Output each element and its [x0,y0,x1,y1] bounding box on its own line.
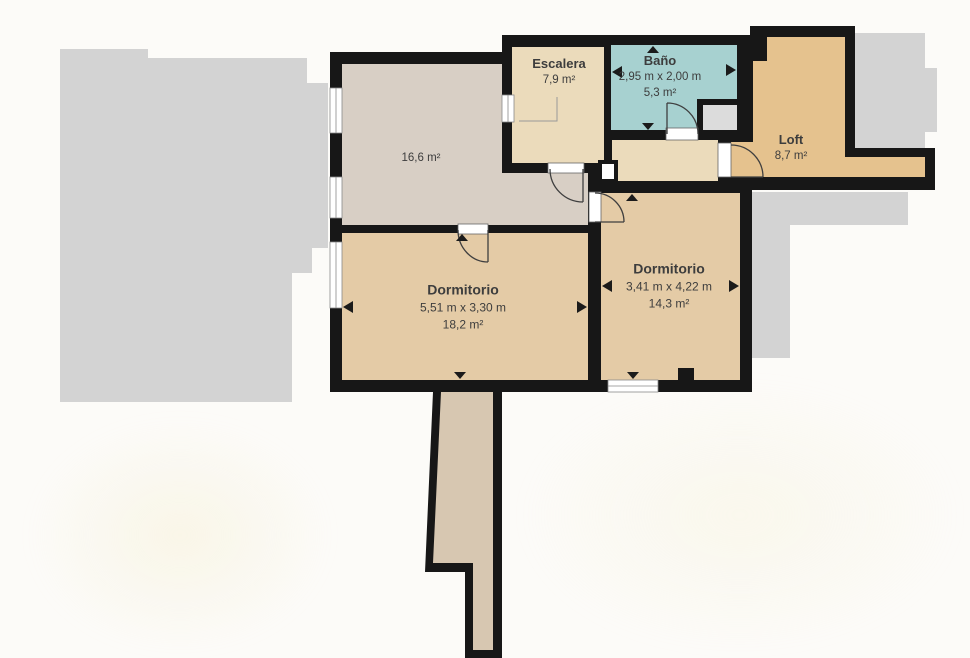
room-name: Dormitorio [420,281,506,300]
room-area: 8,7 m² [775,148,808,164]
shower-tray [703,105,737,130]
floorplan-image: 16,6 m² Escalera 7,9 m² Baño 2,95 m x 2,… [0,0,970,658]
door-sill-bathroom [666,128,698,140]
door-sill-bedroom1 [458,224,488,234]
room-area: 7,9 m² [532,72,586,88]
room-label-bathroom: Baño 2,95 m x 2,00 m 5,3 m² [619,53,701,101]
adjacent-building-right-top [855,33,937,148]
adjacent-building-right-bottom [750,192,908,358]
room-label-living: 16,6 m² [402,150,441,166]
room-name: Dormitorio [626,260,712,279]
room-label-loft: Loft 8,7 m² [775,132,808,164]
corridor-floor [433,392,493,650]
room-label-bedroom1: Dormitorio 5,51 m x 3,30 m 18,2 m² [420,281,506,334]
room-label-bedroom2: Dormitorio 3,41 m x 4,22 m 14,3 m² [626,260,712,313]
room-dimensions: 3,41 m x 4,22 m [626,279,712,296]
room-name: Escalera [532,56,586,72]
door-sill-stairs [548,163,584,173]
room-area: 14,3 m² [626,296,712,313]
room-label-stairs: Escalera 7,9 m² [532,56,586,88]
door-sill-loft [718,143,731,177]
room-dimensions: 5,51 m x 3,30 m [420,300,506,317]
room-name: Baño [619,53,701,69]
room-name: Loft [775,132,808,148]
room-dimensions: 2,95 m x 2,00 m [619,69,701,85]
room-area: 5,3 m² [619,85,701,101]
adjacent-building-left [60,49,328,402]
room-area: 16,6 m² [402,150,441,166]
room-area: 18,2 m² [420,317,506,334]
wall-stub [678,368,694,392]
hallway-floor [612,140,718,181]
shaft-void [602,164,614,179]
door-sill-bedroom2 [589,192,601,222]
